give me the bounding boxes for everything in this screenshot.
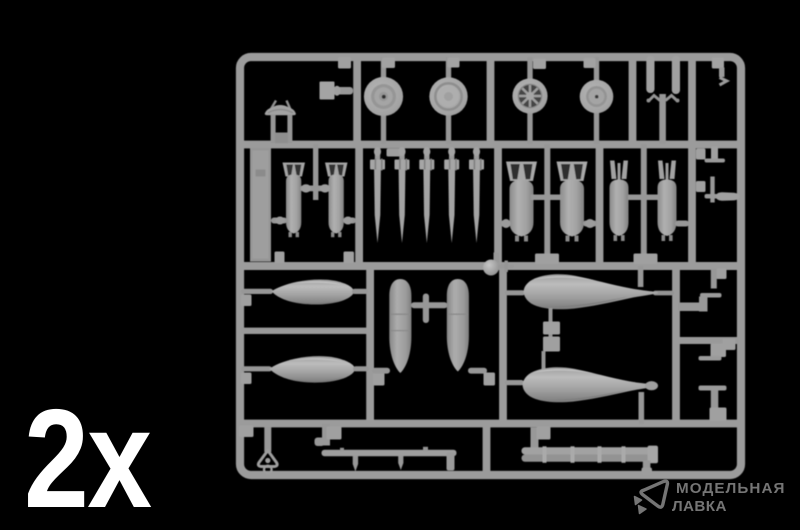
svg-text:2x: 2x [24, 381, 151, 530]
svg-text:МОДЕЛЬНАЯ: МОДЕЛЬНАЯ [676, 480, 786, 497]
svg-text:ЛАВКА: ЛАВКА [672, 498, 727, 515]
